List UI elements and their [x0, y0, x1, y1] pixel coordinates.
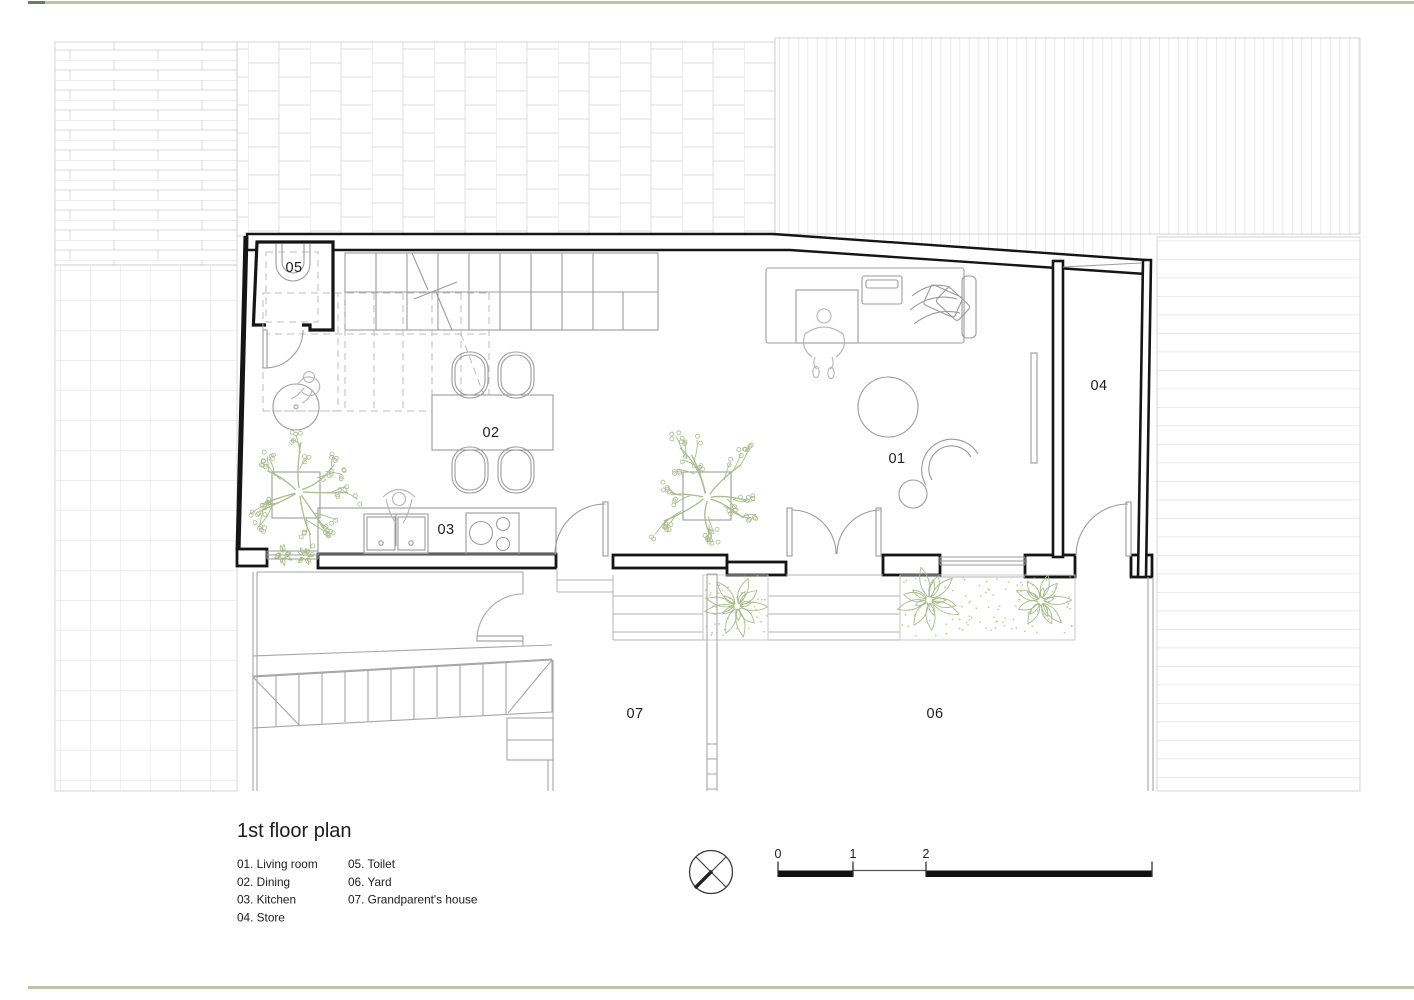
room-label-grandparent: 07 [627, 706, 644, 722]
legend-item-04: 04. Store [237, 910, 285, 924]
side-table [899, 480, 927, 508]
room-label-living: 01 [889, 451, 906, 467]
wall-pier-sw [237, 549, 267, 566]
wall-store-right [1138, 260, 1151, 577]
legend: 01. Living room02. Dining03. Kitchen04. … [237, 857, 478, 924]
store-interior [1031, 263, 1141, 463]
north-compass-icon [690, 851, 733, 894]
room-label-dining: 02 [483, 425, 500, 441]
door-grandparent-entry [477, 572, 523, 641]
wall-pier-center-a [613, 555, 727, 568]
sliding-panel [1031, 353, 1037, 463]
legend-item-07: 07. Grandparent's house [348, 893, 478, 907]
planting-dots [705, 575, 768, 636]
hatch-tiles-top-middle [237, 42, 775, 236]
door-french-double [787, 508, 881, 556]
lounge-chair [899, 439, 978, 508]
wall-left [238, 236, 246, 551]
round-rug [858, 377, 918, 437]
person-sofa [804, 309, 845, 379]
legend-item-01: 01. Living room [237, 857, 318, 871]
person-kitchen [383, 490, 415, 524]
page-border-tip [28, 1, 45, 4]
room-labels: 01 02 03 04 05 06 07 [286, 260, 1108, 722]
floor-plan-drawing: 01 02 03 04 05 06 07 1st floor plan 01. … [0, 0, 1414, 1000]
person-hall [291, 372, 320, 404]
door-store [1076, 502, 1131, 556]
floor-plan-page: 01 02 03 04 05 06 07 1st floor plan 01. … [0, 0, 1414, 1000]
wall-pier-center-b [727, 562, 786, 575]
hatch-brick-top-left [55, 42, 237, 265]
scale-tick-1: 1 [850, 847, 857, 861]
living-room-furniture [766, 268, 978, 508]
page-border-bottom [28, 986, 1414, 989]
dining-set [432, 352, 553, 493]
hatch-grid-left [55, 265, 237, 791]
room-label-store: 04 [1091, 378, 1108, 394]
planting-dots [901, 576, 1072, 637]
window-living [940, 557, 1025, 565]
plan-title: 1st floor plan [237, 820, 352, 842]
grandparent-house-area [253, 572, 553, 791]
kitchen-sink [364, 514, 428, 553]
tree [650, 431, 758, 546]
planter-left [703, 575, 768, 640]
doors [263, 330, 1131, 641]
bush [1017, 575, 1072, 624]
legend-item-03: 03. Kitchen [237, 893, 296, 907]
wall-bottom-kitchen [318, 554, 556, 568]
room-label-yard: 06 [927, 706, 944, 722]
page-border-top [45, 1, 1414, 4]
door-kitchen-exit [555, 502, 608, 556]
wall-pier-center-c [883, 555, 940, 575]
scale-bar: 0 1 2 [775, 847, 1152, 877]
hatch-hlines-right [1157, 237, 1360, 791]
stairs-main [345, 253, 658, 330]
yard-boundary-right [1148, 577, 1153, 791]
wall-store-left [1053, 261, 1063, 557]
wall-pier-store-left [1025, 555, 1075, 577]
wall-toilet-room [253, 242, 333, 330]
scale-tick-2: 2 [923, 847, 930, 861]
greenery-layer [249, 430, 1073, 636]
title-block: 1st floor plan 01. Living room02. Dining… [237, 820, 478, 924]
legend-item-06: 06. Yard [348, 875, 392, 889]
legend-item-05: 05. Toilet [348, 857, 396, 871]
scale-tick-0: 0 [775, 847, 782, 861]
room-label-kitchen: 03 [438, 522, 455, 538]
door-toilet [263, 330, 303, 368]
legend-item-02: 02. Dining [237, 875, 290, 889]
room-label-toilet: 05 [286, 260, 303, 276]
hatch-vlines-top-right [775, 38, 1360, 234]
tree [249, 430, 362, 556]
kitchen-cooktop [466, 513, 519, 554]
